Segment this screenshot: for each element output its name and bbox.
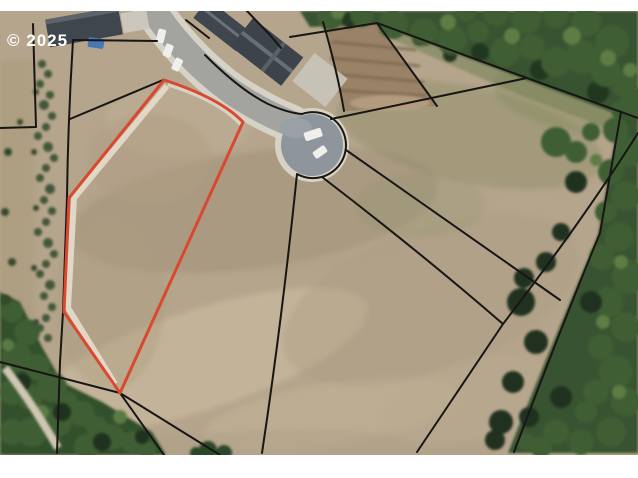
trees-right-band-part-part <box>565 141 587 163</box>
trees-right-band-part-part <box>565 171 587 193</box>
field-patches-part <box>355 173 485 237</box>
shrub-row-part-part <box>48 207 56 215</box>
shrub-row-part-part <box>48 303 56 311</box>
shrub-row-part-part <box>1 208 9 216</box>
shrub-row-part-part <box>4 148 12 156</box>
trees-top-right-part-part <box>519 34 545 60</box>
trees-right-band-part-part <box>524 330 548 354</box>
shrub-row-part-part <box>36 270 44 278</box>
shrub-row-part-part <box>45 184 55 194</box>
trees-right-band-part-part <box>614 255 628 269</box>
copyright-watermark: © 2025 <box>7 31 68 50</box>
shrub-row-part-part <box>42 164 50 172</box>
photo-canvas: © 2025 <box>0 0 638 478</box>
shrub-row-part-part <box>42 260 50 268</box>
trees-bottom-left-part-part <box>53 403 71 421</box>
shrub-row-part-part <box>36 324 44 332</box>
shrub-row-part-part <box>17 119 23 125</box>
trees-top-right-part-part <box>467 21 489 43</box>
bottom-crop-bar <box>0 455 638 478</box>
shrub-row-part-part <box>36 80 44 88</box>
field-patches-part <box>0 60 34 330</box>
trees-right-band-part-part <box>580 291 602 313</box>
trees-right-band-part-part <box>582 123 600 141</box>
shrub-row-part-part <box>33 205 39 211</box>
shrub-row-part-part <box>44 334 52 342</box>
trees-right-band-part-part <box>596 417 626 447</box>
trees-right-band-part-part <box>612 385 626 399</box>
trees-right-band-part-part <box>502 371 524 393</box>
trees-top-right-part-part <box>504 28 520 44</box>
shrub-row-part-part <box>40 292 48 300</box>
trees-right-band-part-part <box>568 429 594 455</box>
shrub-row-part-part <box>43 238 53 248</box>
shrub-row-part-part <box>8 258 16 266</box>
shrub-row-part-part <box>36 174 44 182</box>
trees-right-band-part-part <box>485 430 505 450</box>
trees-right-band-part-part <box>590 154 602 166</box>
shrub-row-part-part <box>33 319 39 325</box>
shrub-row-part-part <box>50 154 58 162</box>
trees-top-right-part-part <box>600 50 616 66</box>
trees-top-right-part-part <box>410 18 438 46</box>
trees-bottom-left-part-part <box>113 410 127 424</box>
trees-right-band-part-part <box>595 201 617 223</box>
construction-dirt-lot-part <box>350 95 430 111</box>
trees-bottom-left-part-part <box>93 433 111 451</box>
parcel-line <box>73 40 157 41</box>
aerial-parcel-photo: © 2025 <box>0 0 638 478</box>
shrub-row-part-part <box>46 91 54 99</box>
shrub-row-part-part <box>42 218 50 226</box>
shrub-row-part-part <box>43 142 53 152</box>
photo-canvas-part <box>0 0 638 478</box>
shrub-row-part-part <box>45 280 55 290</box>
shrub-row-part-part <box>31 149 37 155</box>
shrub-row-part-part <box>31 265 37 271</box>
trees-top-right-part-part <box>623 63 637 77</box>
top-crop-bar <box>0 0 638 11</box>
shrub-row-part-part <box>40 196 48 204</box>
trees-top-right-part-part <box>440 14 456 30</box>
shrub-row-part-part <box>50 250 58 258</box>
trees-right-band-part-part <box>536 252 556 272</box>
trees-bottom-left-part-part <box>0 419 25 445</box>
shrub-row-part-part <box>34 132 42 140</box>
shrub-row-part-part <box>42 314 50 322</box>
trees-right-band-part-part <box>550 386 572 408</box>
shrub-row-part-part <box>42 123 50 131</box>
shrub-row-part-part <box>39 100 49 110</box>
shrub-row-part-part <box>44 70 52 78</box>
shrub-row-part-part <box>48 112 56 120</box>
trees-right-band-part-part <box>596 315 610 329</box>
shrub-row-part-part <box>38 60 46 68</box>
trees-right-band-part-part <box>575 401 597 423</box>
shrub-row-part-part <box>1 295 11 305</box>
shrub-row-part-part <box>34 228 42 236</box>
trees-top-right-part-part <box>563 27 581 45</box>
trees-bottom-left-part-part <box>2 339 14 351</box>
